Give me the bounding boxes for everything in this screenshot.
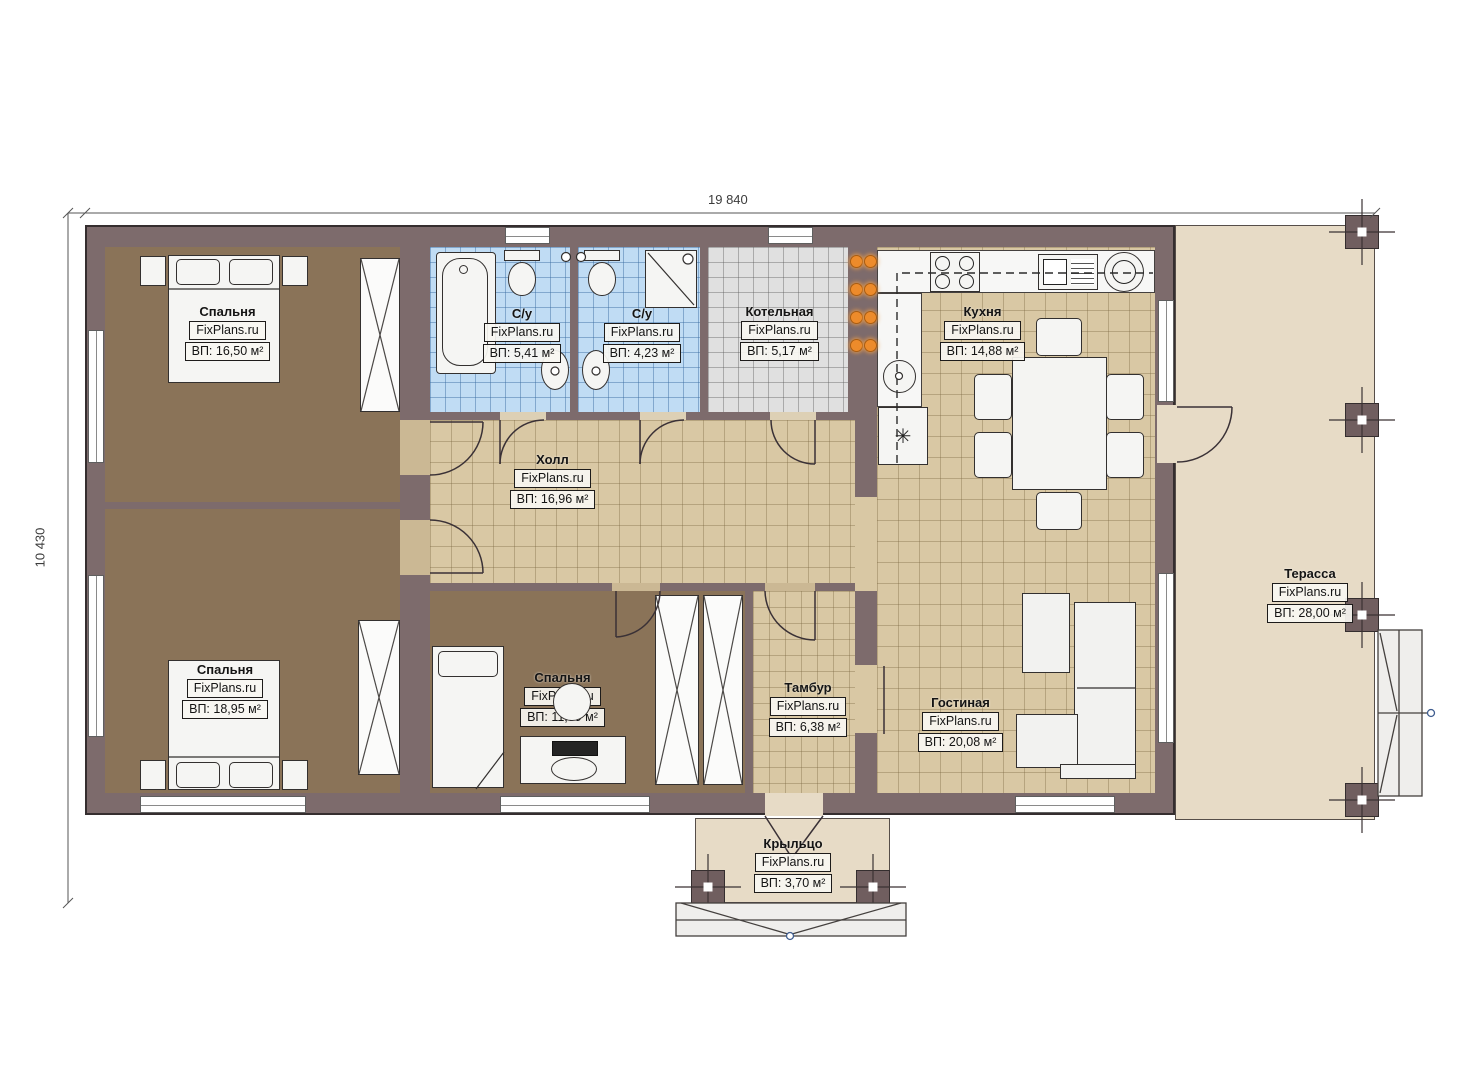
room-label-terrace: Терасса FixPlans.ru ВП: 28,00 м² <box>1250 566 1370 623</box>
room-label-bedroom-2: Спальня FixPlans.ru ВП: 18,95 м² <box>165 662 285 719</box>
door-opening-bedroom-2 <box>400 520 430 575</box>
kitchen-sink-unit <box>1038 254 1098 290</box>
chair <box>1036 492 1082 530</box>
terrace-post <box>1345 403 1379 437</box>
shower-tray <box>645 250 697 308</box>
chair <box>1106 432 1144 478</box>
door-opening-vestibule <box>765 583 815 591</box>
boiler-equipment-dot <box>864 339 877 352</box>
terrace-stairs <box>1378 630 1435 796</box>
door-opening-boiler <box>770 412 816 420</box>
area-box: ВП: 4,23 м² <box>603 344 682 363</box>
pillow <box>176 259 220 285</box>
pillow <box>229 762 273 788</box>
window-top-boiler <box>768 227 813 244</box>
boiler-equipment-dot <box>850 339 863 352</box>
watermark-box: FixPlans.ru <box>741 321 818 340</box>
room-name: Кухня <box>964 304 1002 319</box>
window-bottom-living <box>1015 796 1115 813</box>
room-name: Терасса <box>1284 566 1336 581</box>
desk-chair <box>551 757 597 781</box>
room-name: Тамбур <box>784 680 831 695</box>
room-name: С/у <box>512 306 532 321</box>
door-opening-bedroom-1 <box>400 420 430 475</box>
door-opening-bathroom-1 <box>500 412 546 420</box>
sofa-armrest <box>1060 764 1136 779</box>
boiler-equipment-dot <box>850 283 863 296</box>
porch-post <box>691 870 725 904</box>
counter-sink-round <box>883 360 916 393</box>
opening-hall-kitchen <box>855 497 877 591</box>
room-name: Крыльцо <box>763 836 822 851</box>
monitor <box>552 741 598 756</box>
room-name: Гостиная <box>931 695 990 710</box>
window-top-bathroom <box>505 227 550 244</box>
porch-post <box>856 870 890 904</box>
nightstand <box>140 760 166 790</box>
terrace-post <box>1345 783 1379 817</box>
watermark-box: FixPlans.ru <box>604 323 681 342</box>
room-label-vestibule: Тамбур FixPlans.ru ВП: 6,38 м² <box>758 680 858 737</box>
sofa-section-horizontal <box>1016 714 1078 768</box>
coffee-table <box>1022 593 1070 673</box>
porch-stairs <box>676 903 906 940</box>
terrace-post <box>1345 215 1379 249</box>
window-bottom-bedroom-3 <box>500 796 650 813</box>
door-opening-terrace <box>1157 405 1176 463</box>
dimension-width-label: 19 840 <box>708 192 748 207</box>
toilet-tank-1 <box>504 250 540 261</box>
room-label-bathroom-2: С/у FixPlans.ru ВП: 4,23 м² <box>592 306 692 363</box>
boiler-equipment-dot <box>850 311 863 324</box>
toilet-bowl-1 <box>508 262 536 296</box>
pillow <box>229 259 273 285</box>
room-label-hall: Холл FixPlans.ru ВП: 16,96 м² <box>495 452 610 509</box>
room-label-bedroom-1: Спальня FixPlans.ru ВП: 16,50 м² <box>170 304 285 361</box>
sink-basin <box>1043 259 1067 285</box>
area-box: ВП: 16,96 м² <box>510 490 596 509</box>
boiler-equipment-dot <box>864 255 877 268</box>
area-box: ВП: 5,41 м² <box>483 344 562 363</box>
sink-drainer <box>1071 259 1094 285</box>
window-right-kitchen <box>1158 300 1174 402</box>
watermark-box: FixPlans.ru <box>189 321 266 340</box>
dining-table <box>1012 357 1107 490</box>
room-name: Холл <box>536 452 569 467</box>
chair <box>1036 318 1082 356</box>
area-box: ВП: 20,08 м² <box>918 733 1004 752</box>
nightstand <box>282 760 308 790</box>
window-left-bedroom-1 <box>88 330 104 463</box>
chair <box>974 432 1012 478</box>
area-box: ВП: 28,00 м² <box>1267 604 1353 623</box>
wardrobe-bedroom-1 <box>360 258 400 412</box>
room-name: Спальня <box>197 662 253 677</box>
floor-plan-canvas: 19 840 10 430 <box>0 0 1473 1080</box>
toilet-tank-2 <box>584 250 620 261</box>
room-name: Спальня <box>534 670 590 685</box>
watermark-box: FixPlans.ru <box>187 679 264 698</box>
wardrobe-bedroom-2 <box>358 620 400 775</box>
burner <box>935 256 950 271</box>
door-opening-bathroom-2 <box>640 412 686 420</box>
room-name: Котельная <box>745 304 813 319</box>
round-basin <box>1104 252 1144 292</box>
chair <box>974 374 1012 420</box>
area-box: ВП: 3,70 м² <box>754 874 833 893</box>
watermark-box: FixPlans.ru <box>1272 583 1349 602</box>
room-label-living: Гостиная FixPlans.ru ВП: 20,08 м² <box>903 695 1018 752</box>
area-box: ВП: 16,50 м² <box>185 342 271 361</box>
dimension-height-label: 10 430 <box>32 528 47 568</box>
door-opening-porch <box>765 793 823 816</box>
window-bottom-bedroom-2 <box>140 796 306 813</box>
room-label-boiler: Котельная FixPlans.ru ВП: 5,17 м² <box>722 304 837 361</box>
bathtub-drain <box>459 265 468 274</box>
area-box: ВП: 6,38 м² <box>769 718 848 737</box>
watermark-box: FixPlans.ru <box>755 853 832 872</box>
stove <box>930 252 980 292</box>
watermark-box: FixPlans.ru <box>922 712 999 731</box>
burner <box>935 274 950 289</box>
area-box: ВП: 14,88 м² <box>940 342 1026 361</box>
area-box: ВП: 18,95 м² <box>182 700 268 719</box>
boiler-equipment-dot <box>864 311 877 324</box>
round-basin-inner <box>1112 260 1136 284</box>
nightstand <box>282 256 308 286</box>
watermark-box: FixPlans.ru <box>484 323 561 342</box>
room-label-kitchen: Кухня FixPlans.ru ВП: 14,88 м² <box>925 304 1040 361</box>
watermark-box: FixPlans.ru <box>514 469 591 488</box>
burner <box>959 256 974 271</box>
room-label-bathroom-1: С/у FixPlans.ru ВП: 5,41 м² <box>472 306 572 363</box>
boiler-equipment-dot <box>864 283 877 296</box>
stool <box>553 683 591 721</box>
room-label-porch: Крыльцо FixPlans.ru ВП: 3,70 м² <box>733 836 853 893</box>
room-name: Спальня <box>199 304 255 319</box>
chair <box>1106 374 1144 420</box>
wardrobe-bedroom-3-a <box>655 595 699 785</box>
door-opening-bedroom-3 <box>612 583 660 591</box>
watermark-box: FixPlans.ru <box>770 697 847 716</box>
sofa-section-vertical <box>1074 602 1136 778</box>
toilet-bowl-2 <box>588 262 616 296</box>
burner <box>959 274 974 289</box>
fridge-snowflake-icon: ✳ <box>895 424 912 449</box>
watermark-box: FixPlans.ru <box>944 321 1021 340</box>
pillow <box>176 762 220 788</box>
pillow <box>438 651 498 677</box>
room-name: С/у <box>632 306 652 321</box>
room-hall-floor <box>430 420 855 583</box>
door-opening-living <box>855 665 877 733</box>
terrace-floor <box>1175 225 1375 820</box>
fridge: ✳ <box>878 407 928 465</box>
wardrobe-bedroom-3-b <box>703 595 743 785</box>
boiler-equipment-dot <box>850 255 863 268</box>
window-right-living <box>1158 573 1174 743</box>
window-left-bedroom-2 <box>88 575 104 737</box>
nightstand <box>140 256 166 286</box>
area-box: ВП: 5,17 м² <box>740 342 819 361</box>
